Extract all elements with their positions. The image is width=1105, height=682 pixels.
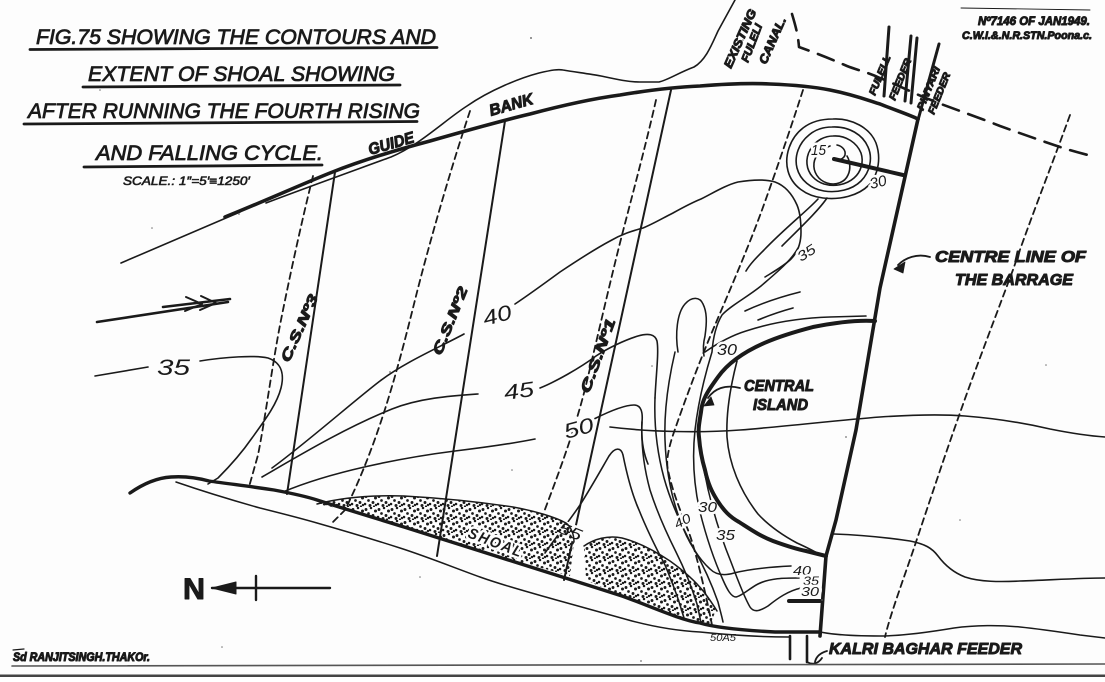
svg-text:CENTRAL: CENTRAL [744,378,814,395]
svg-text:KALRI BAGHAR FEEDER: KALRI BAGHAR FEEDER [829,641,1022,658]
svg-text:35: 35 [716,527,736,544]
svg-text:30: 30 [801,584,820,599]
svg-text:THE BARRAGE: THE BARRAGE [955,272,1074,289]
svg-text:30: 30 [698,499,718,516]
svg-text:FIG.75 SHOWING THE CONTOURS AN: FIG.75 SHOWING THE CONTOURS AND [36,26,436,49]
svg-text:Sd RANJITSINGH.THAKOr.: Sd RANJITSINGH.THAKOr. [13,652,150,664]
svg-text:35: 35 [157,355,191,380]
svg-text:15: 15 [811,142,827,159]
svg-text:AFTER RUNNING THE FOURTH RISIN: AFTER RUNNING THE FOURTH RISING [26,100,420,123]
svg-text:EXTENT OF SHOAL SHOWING: EXTENT OF SHOAL SHOWING [88,63,395,86]
svg-text:45: 45 [502,378,535,405]
svg-text:CENTRE LINE OF: CENTRE LINE OF [935,249,1087,266]
svg-text:N: N [183,573,205,606]
svg-text:Nº7146 OF JAN1949.: Nº7146 OF JAN1949. [978,14,1090,28]
svg-text:SCALE.: 1″=5′≡1250′: SCALE.: 1″=5′≡1250′ [123,176,251,188]
svg-text:30: 30 [717,342,737,359]
svg-text:ISLAND: ISLAND [753,397,808,414]
svg-text:AND FALLING CYCLE.: AND FALLING CYCLE. [94,142,323,165]
svg-text:C.W.I.&.N.R.STN.Poona.c.: C.W.I.&.N.R.STN.Poona.c. [962,30,1092,42]
